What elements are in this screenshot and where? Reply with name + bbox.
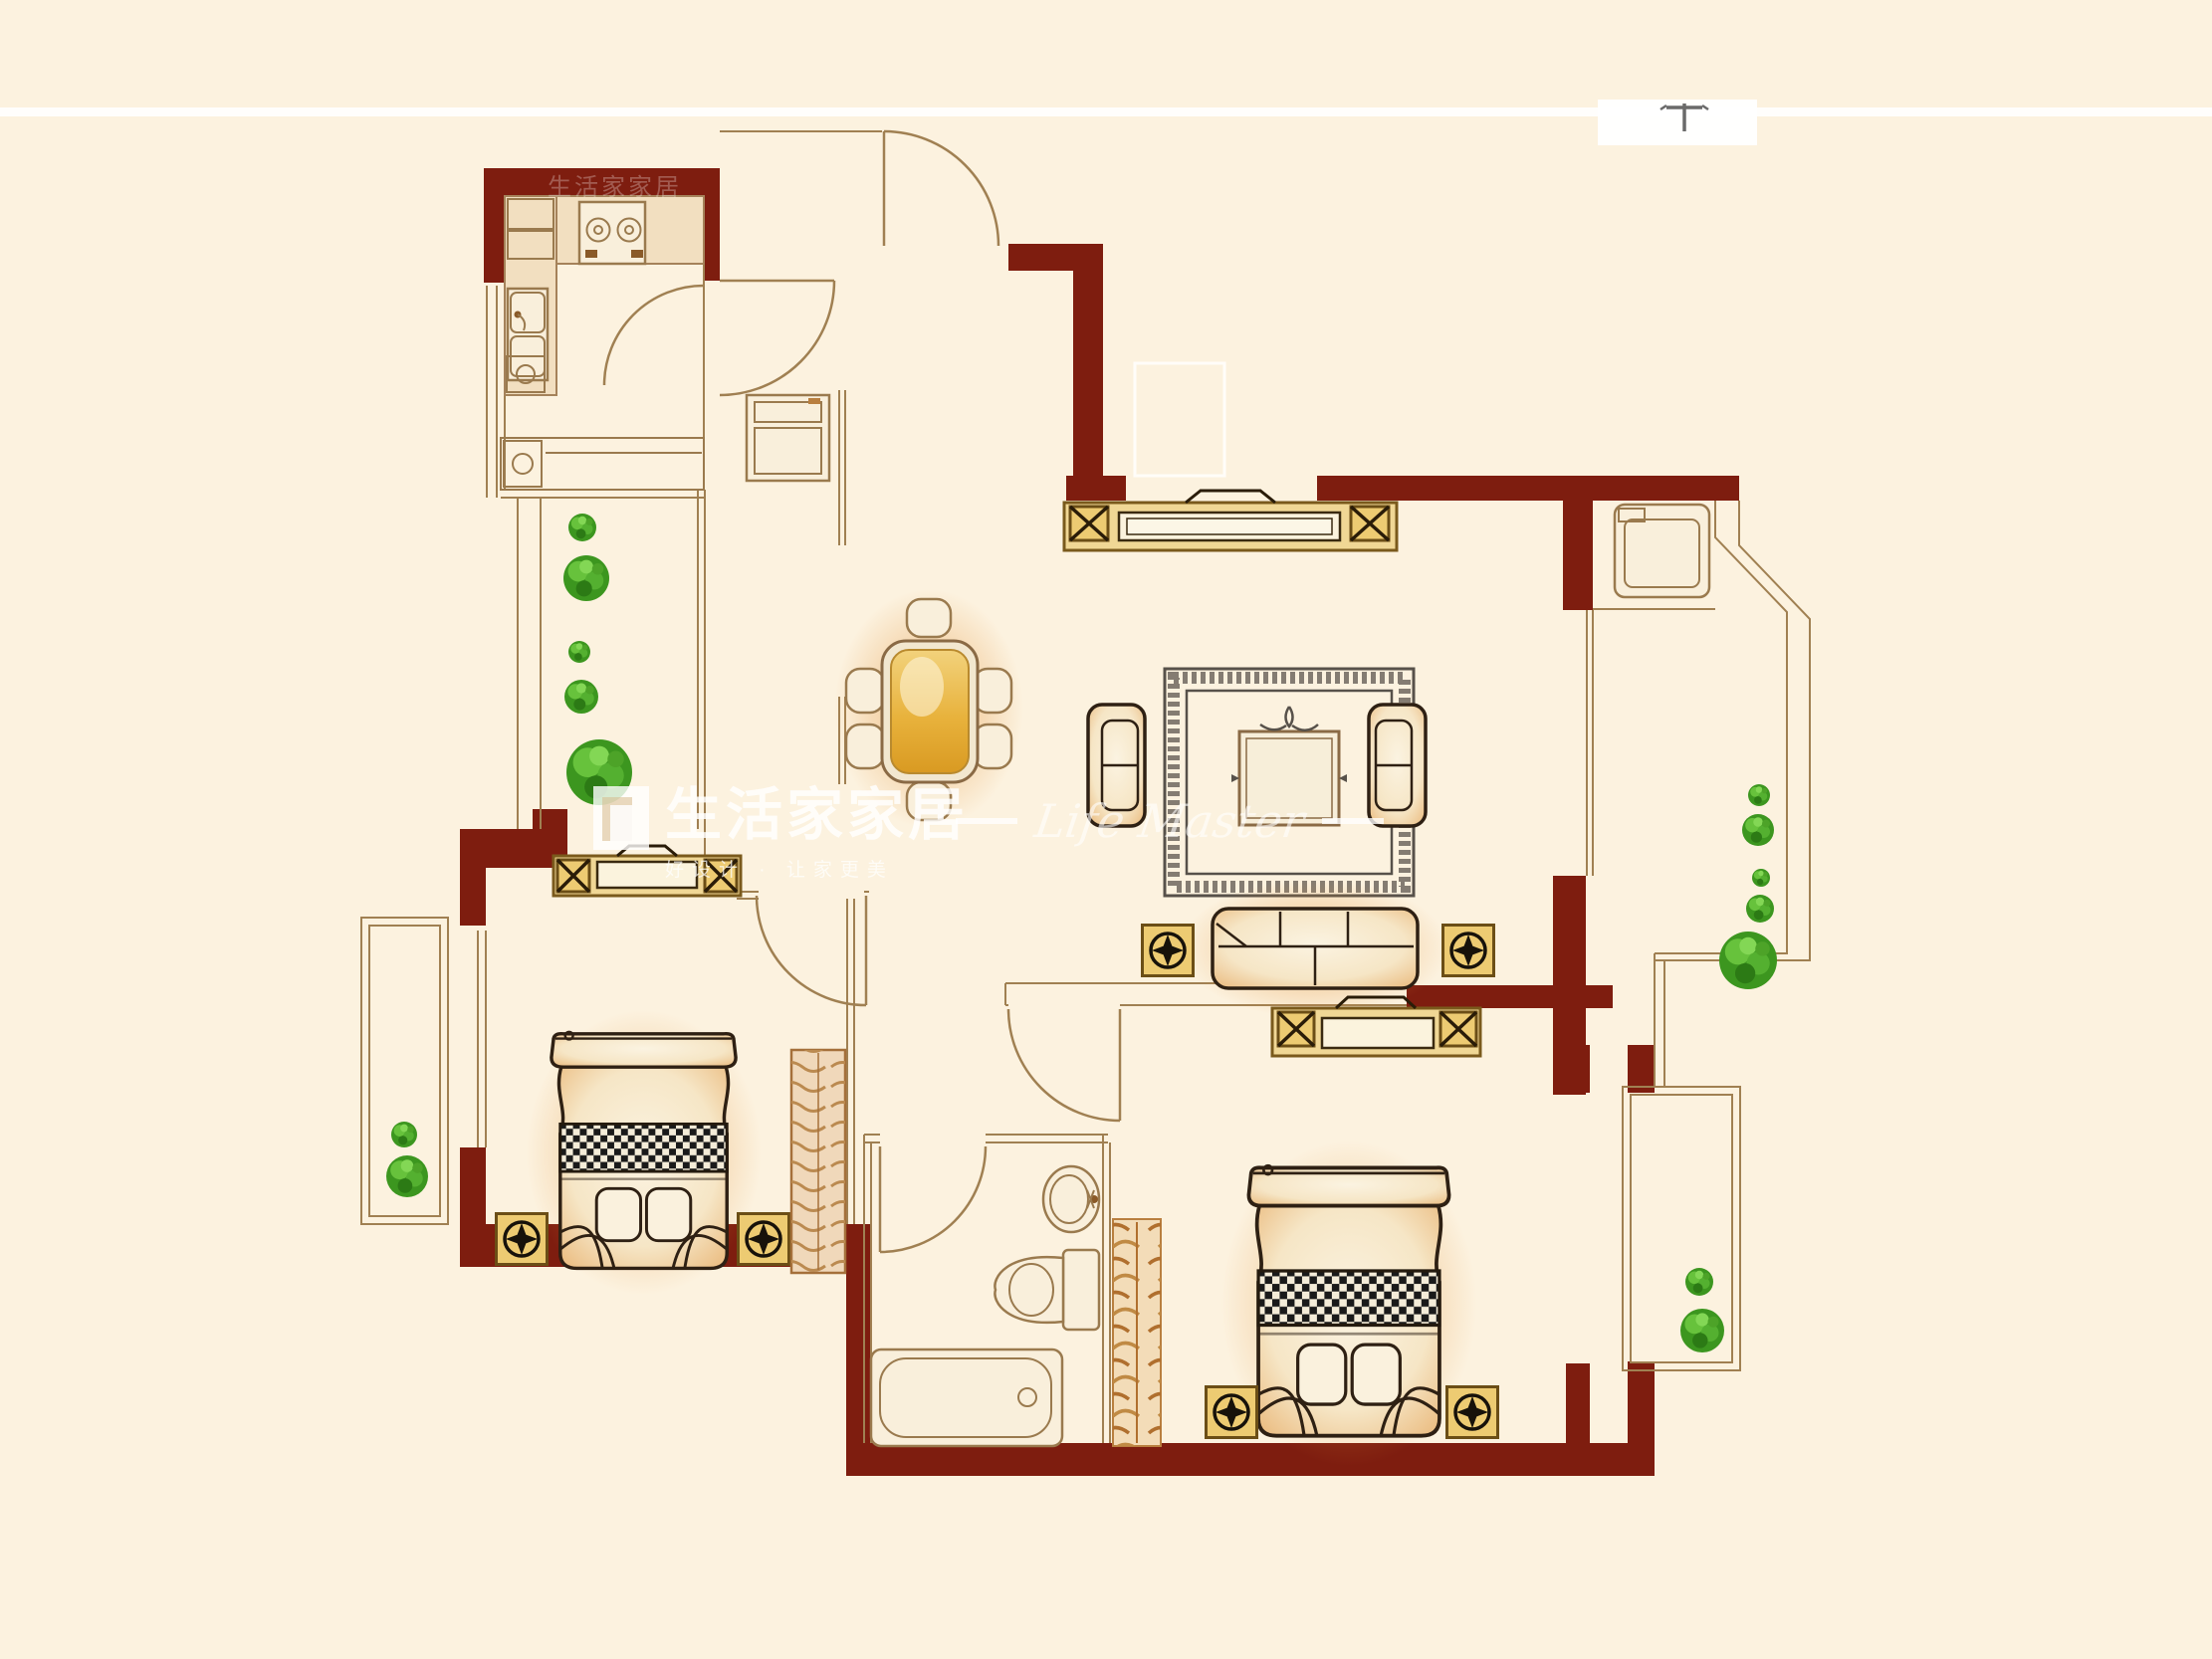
side-table	[1143, 926, 1194, 976]
north-indicator	[1598, 100, 1757, 145]
double-bed-left	[526, 1010, 761, 1295]
wardrobe	[791, 1050, 845, 1273]
double-bed-right	[1221, 1141, 1477, 1466]
floor-plan: 生活家家居 好设计 · 让家更美 Life Master 生活家家居	[0, 0, 2212, 1659]
side-table	[1443, 926, 1494, 976]
three-seat-sofa	[1180, 879, 1448, 1018]
dining-set	[834, 589, 1023, 828]
armchair	[1088, 705, 1145, 826]
dining-chair	[846, 725, 884, 768]
dining-chair	[907, 782, 951, 820]
nightstand	[497, 1214, 548, 1265]
dining-table	[882, 641, 978, 782]
washing-machine	[1615, 505, 1709, 597]
gas-stove	[579, 202, 645, 264]
dining-chair	[974, 669, 1011, 713]
dining-chair	[974, 725, 1011, 768]
nightstand	[739, 1214, 789, 1265]
wash-basin	[1043, 1166, 1099, 1232]
dining-chair	[907, 599, 951, 637]
bathtub	[871, 1349, 1062, 1446]
plant-column	[1113, 1219, 1161, 1446]
nightstand	[1447, 1387, 1498, 1438]
top-white-strip	[0, 107, 2212, 116]
entry-cabinet	[747, 395, 829, 481]
floor-background	[0, 0, 2212, 1659]
nightstand	[1207, 1387, 1257, 1438]
dining-chair	[846, 669, 884, 713]
armchair	[1369, 705, 1426, 826]
